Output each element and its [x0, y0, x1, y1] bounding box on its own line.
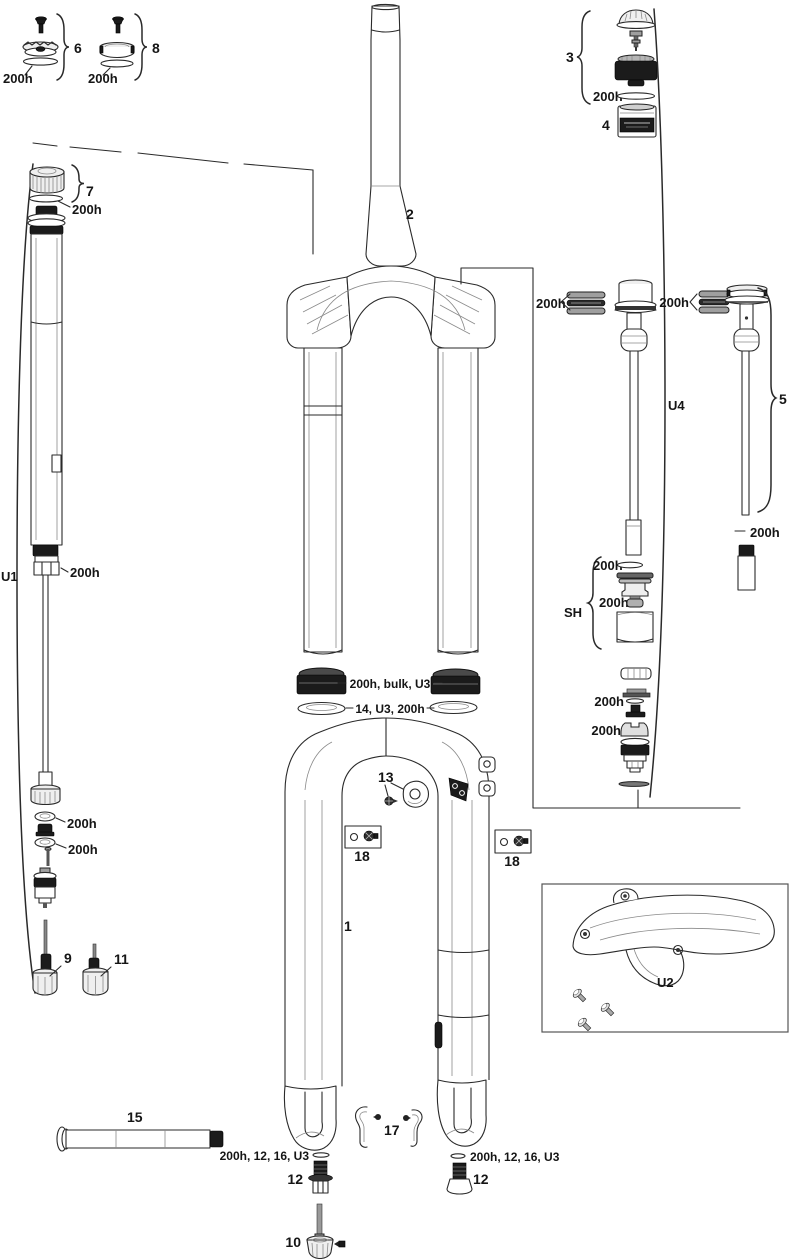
callout-200h-kit6: 200h — [3, 71, 33, 86]
callout-200h-washer2: 200h — [68, 842, 98, 857]
air-shaft-hardware: 200h 200h — [591, 668, 651, 786]
callout-7: 7 — [86, 183, 94, 199]
callout-6: 6 — [74, 40, 82, 56]
callout-foam-ring-kit: 14, U3, 200h — [355, 702, 424, 716]
grease-canister-4: 4 — [602, 104, 656, 137]
rebound-adjuster-rod-10: 10 — [285, 1204, 345, 1259]
callout-200h-washer1: 200h — [67, 816, 97, 831]
callout-u2: U2 — [657, 975, 674, 990]
damper-leader-line — [33, 143, 313, 254]
callout-u4: U4 — [668, 398, 685, 413]
callout-200h-shaft1: 200h — [594, 694, 624, 709]
callout-11: 11 — [114, 951, 129, 967]
callout-2: 2 — [406, 206, 414, 222]
fender-screw-icon — [571, 987, 587, 1003]
callout-12-right: 12 — [473, 1171, 489, 1187]
callout-9: 9 — [64, 950, 72, 966]
crown-steerer-unit-2: 2 — [287, 4, 495, 654]
callout-sh: SH — [564, 605, 582, 620]
rebound-knob-9: 9 — [33, 920, 72, 995]
fitting-kit-18-right: 18 — [495, 830, 531, 869]
callout-200h-rings-left: 200h — [536, 296, 566, 311]
callout-200h-sh2: 200h — [599, 595, 629, 610]
damper-assembly-u1: U1 7 200h — [1, 164, 129, 995]
callout-8: 8 — [152, 40, 160, 56]
callout-200h-shaft2: 200h — [591, 723, 621, 738]
callout-u1: U1 — [1, 569, 18, 584]
topcap-kit-8: 200h 8 — [88, 14, 160, 86]
callout-200h-knob7: 200h — [72, 202, 102, 217]
callout-200h-rings-right: 200h — [659, 295, 689, 310]
fender-screw-icon — [599, 1001, 615, 1017]
callout-3: 3 — [566, 49, 574, 65]
hose-clip-kit-17: 17 — [356, 1107, 422, 1147]
callout-10: 10 — [285, 1234, 301, 1250]
shaft-bolt-left-12: 200h, 12, 16, U3 12 — [220, 1149, 333, 1193]
callout-18-left: 18 — [354, 848, 370, 864]
damper-shaft-end-parts: 200h 200h — [31, 772, 98, 908]
topcap-kit-6: 200h 6 — [3, 14, 82, 86]
shaft-bolt-right-12: 200h, 12, 16, U3 12 — [447, 1150, 560, 1194]
callout-1: 1 — [344, 918, 352, 934]
topcap-kit-3: 3 200h — [566, 10, 657, 104]
callout-4: 4 — [602, 117, 610, 133]
fender-screw-icon — [576, 1016, 592, 1032]
callout-200h-bumper: 200h — [750, 525, 780, 540]
diagram-canvas: 200h 6 200h 8 U1 — [0, 0, 800, 1259]
air-shaft-assembly-5: 200h 5 200h — [659, 285, 787, 590]
callout-18-right: 18 — [504, 853, 520, 869]
callout-17: 17 — [384, 1122, 400, 1138]
damper-cartridge-body: 200h — [28, 206, 100, 772]
callout-5: 5 — [779, 391, 787, 407]
callout-bolt-kit-left: 200h, 12, 16, U3 — [220, 1149, 310, 1163]
fender-kit-u2: U2 — [542, 884, 788, 1033]
callout-seal-kit: 200h, bulk, U3 — [350, 677, 431, 691]
callout-12-left: 12 — [287, 1171, 303, 1187]
seal-head-kit-sh: SH 200h 200h — [564, 557, 653, 649]
rebound-knob-11: 11 — [83, 944, 129, 995]
air-piston-assembly-left: 200h — [536, 280, 656, 555]
thru-axle-15: 15 — [57, 1109, 223, 1151]
callout-bolt-kit-right: 200h, 12, 16, U3 — [470, 1150, 560, 1164]
dust-seal-kit: 200h, bulk, U3 14, U3, 200h — [297, 668, 480, 716]
callout-200h-shaftnut: 200h — [70, 565, 100, 580]
callout-15: 15 — [127, 1109, 143, 1125]
parts-diagram-page: 200h 6 200h 8 U1 — [0, 0, 800, 1259]
callout-200h-kit8: 200h — [88, 71, 118, 86]
